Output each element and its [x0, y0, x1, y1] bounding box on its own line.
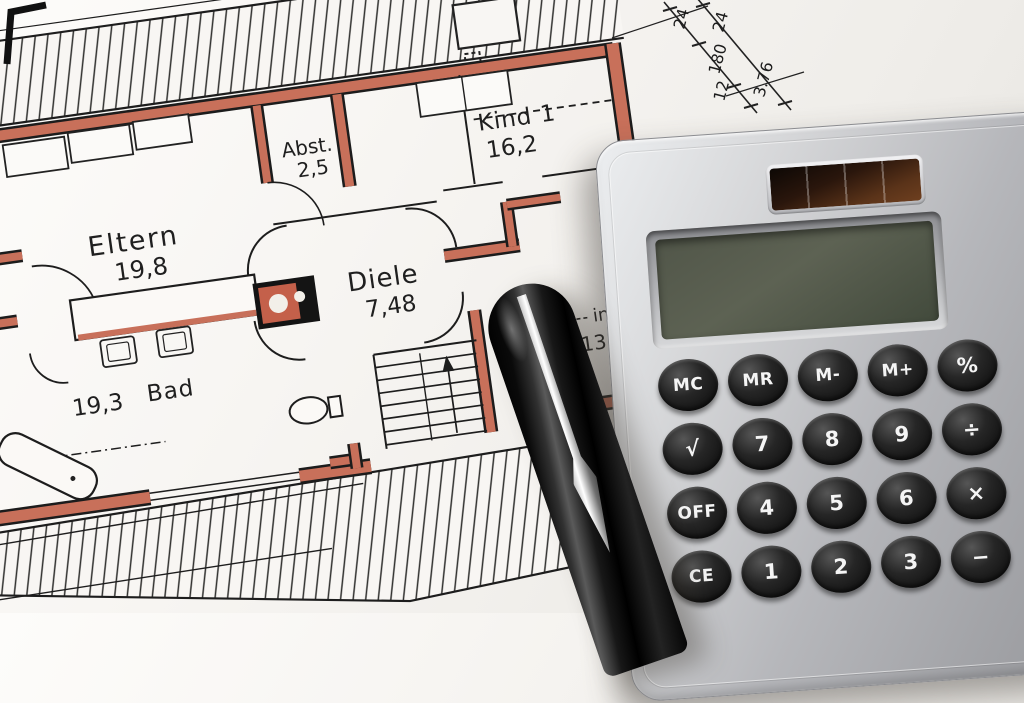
calc-button-2[interactable]: 2 [809, 539, 872, 595]
calc-button-3[interactable]: 3 [879, 534, 942, 590]
calc-button-divide[interactable]: ÷ [940, 401, 1003, 457]
counter-and-stove [70, 266, 322, 370]
calc-button-8[interactable]: 8 [801, 411, 864, 467]
room-area-eltern: 19,8 [113, 252, 170, 287]
calc-button-4[interactable]: 4 [735, 480, 798, 536]
lcd-display [645, 211, 949, 349]
photo-scene: Eltern 19,8 Abst. 2,5 Kind 1 16,2 Diele … [0, 0, 1024, 613]
dimension-180: 180 [705, 42, 731, 76]
calc-button-7[interactable]: 7 [731, 416, 794, 472]
lcd-screen [655, 221, 939, 340]
calc-button-ce[interactable]: CE [670, 549, 733, 605]
dimension-24-a: 24 [670, 6, 694, 31]
staircase [373, 340, 489, 449]
room-area-bad: 19,3 [71, 389, 125, 422]
calc-button-m-plus[interactable]: M+ [866, 342, 929, 398]
calc-button-5[interactable]: 5 [805, 475, 868, 531]
calc-button-multiply[interactable]: × [945, 465, 1008, 521]
calc-button-sqrt[interactable]: √ [661, 421, 724, 477]
solar-cells [769, 158, 922, 210]
calc-button-mr[interactable]: MR [726, 352, 789, 408]
calc-button-off[interactable]: OFF [665, 485, 728, 541]
room-area-kind1: 16,2 [485, 131, 539, 164]
calc-button-percent[interactable]: % [936, 337, 999, 393]
dimension-12: 12 [710, 78, 734, 103]
room-area-abst: 2,5 [295, 154, 330, 182]
dimension-annotations: 24 24 180 12 3.76 [612, 0, 804, 113]
calc-button-6[interactable]: 6 [875, 470, 938, 526]
dimension-24-b: 24 [709, 9, 733, 34]
room-label-bad: Bad [145, 375, 196, 407]
keypad: MC MR M- M+ % √ 7 8 9 ÷ OFF 4 5 6 × CE 1… [656, 337, 1012, 604]
calc-button-9[interactable]: 9 [870, 406, 933, 462]
calc-button-1[interactable]: 1 [740, 544, 803, 600]
calc-button-mc[interactable]: MC [656, 357, 719, 413]
calc-button-minus[interactable]: − [949, 529, 1012, 585]
calc-button-m-minus[interactable]: M- [796, 347, 859, 403]
